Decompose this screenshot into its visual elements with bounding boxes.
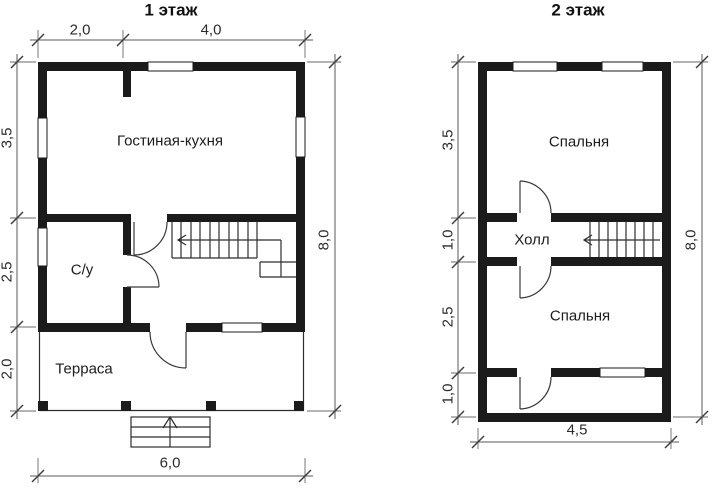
window-icon xyxy=(148,62,193,71)
floor1-windows xyxy=(38,62,305,332)
terrace-post-icon xyxy=(38,401,48,411)
door-living-to-hall-icon xyxy=(134,222,167,255)
window-icon xyxy=(602,62,643,71)
dimension-label: 4,0 xyxy=(201,23,222,38)
dimension-label: 8,0 xyxy=(684,230,699,251)
room-label-living-kitchen: Гостиная-кухня xyxy=(117,134,223,149)
room-label-bedroom-bottom: Спальня xyxy=(550,309,610,324)
door-entrance-icon xyxy=(150,332,186,368)
floor1-plan xyxy=(10,30,341,483)
dimension-label: 6,0 xyxy=(160,456,181,471)
door-bottom-strip-icon xyxy=(520,377,551,409)
floor2-doors xyxy=(520,181,551,409)
terrace-post-icon xyxy=(121,401,131,411)
terrace-post-icon xyxy=(294,401,304,411)
dimension-label: 4,5 xyxy=(567,423,588,438)
window-icon xyxy=(38,118,47,158)
floor1-doors xyxy=(127,222,186,368)
room-label-bedroom-top: Спальня xyxy=(549,135,609,150)
window-icon xyxy=(296,117,305,157)
door-hall-to-bedroom-top-icon xyxy=(520,181,551,213)
window-icon xyxy=(513,62,557,71)
room-label-bathroom: С/у xyxy=(71,263,94,278)
floor1-entrance-steps-icon xyxy=(131,417,210,447)
dimension-label: 3,5 xyxy=(441,130,456,151)
floor1-stairs-icon xyxy=(172,222,296,277)
dimension-label: 3,5 xyxy=(0,128,15,149)
floorplan-page: 1 этаж 2 этаж Гостиная-кухня С/у Терраса… xyxy=(0,0,718,489)
stairs-direction-arrow-icon xyxy=(584,235,660,245)
room-label-hall: Холл xyxy=(514,233,549,248)
dimension-label: 1,0 xyxy=(441,230,456,251)
dimension-label: 2,5 xyxy=(441,307,456,328)
door-bathroom-icon xyxy=(127,255,159,287)
room-label-terrace: Терраса xyxy=(55,362,113,377)
dimension-label: 2,5 xyxy=(0,262,15,283)
dimension-label: 2,0 xyxy=(0,359,15,380)
floor2-stairs-icon xyxy=(584,222,660,257)
door-hall-to-bedroom-bottom-icon xyxy=(520,266,551,298)
window-icon xyxy=(38,228,47,266)
floor1-dimensions xyxy=(10,30,341,483)
dimension-label: 2,0 xyxy=(70,23,91,38)
window-icon xyxy=(600,368,645,377)
dimension-label: 8,0 xyxy=(317,230,332,251)
dimension-label: 1,0 xyxy=(441,384,456,405)
window-icon xyxy=(222,323,262,332)
floor2-title: 2 этаж xyxy=(551,2,604,19)
floorplan-drawing xyxy=(0,0,718,489)
floor1-walls xyxy=(38,62,305,332)
floor2-plan xyxy=(451,54,708,449)
floor1-title: 1 этаж xyxy=(144,2,197,19)
terrace-post-icon xyxy=(206,401,216,411)
